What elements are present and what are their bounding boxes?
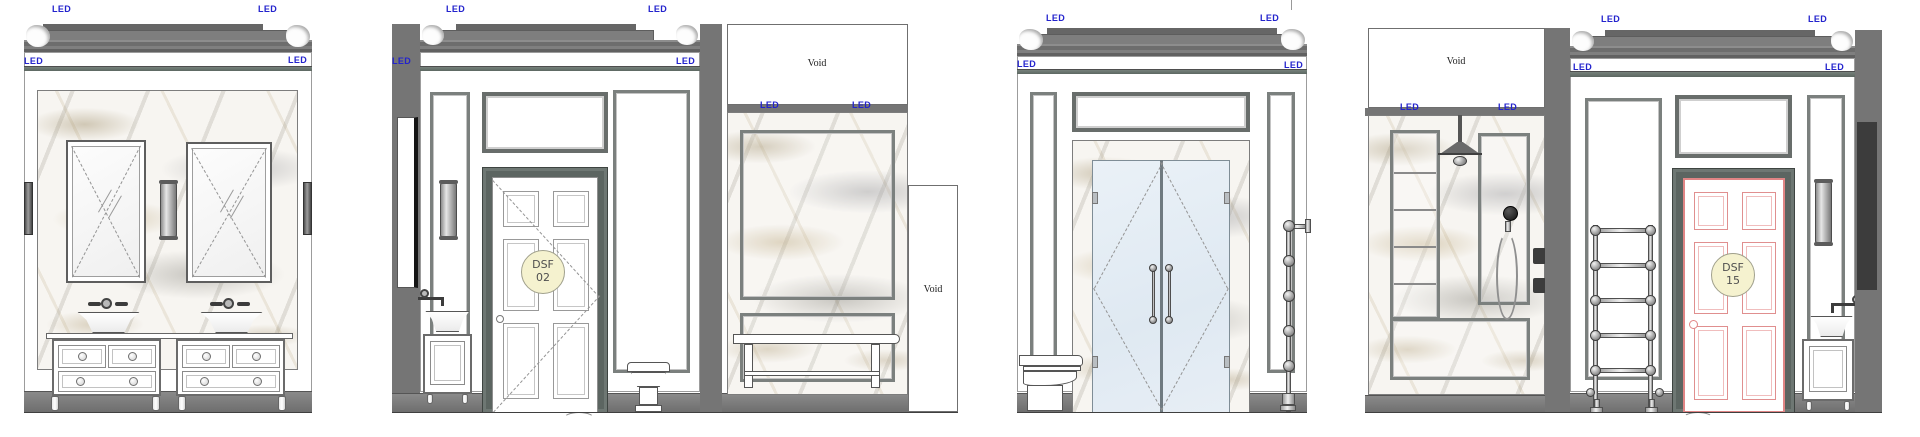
floor-line — [1365, 412, 1882, 413]
door-hinge — [1092, 192, 1098, 204]
drawer-knob — [129, 377, 138, 386]
door-center-stile — [1160, 160, 1163, 413]
shower-niche-shelving — [1390, 130, 1440, 320]
pipe-union — [1590, 260, 1601, 271]
cabinet-foot — [1844, 401, 1850, 411]
vanity-cabinet-right — [176, 339, 285, 396]
cornice-corner-scroll — [286, 25, 310, 47]
led-label: LED — [392, 56, 411, 66]
door-swing-arc — [563, 412, 595, 426]
drawer — [182, 371, 280, 392]
toilet-base — [635, 405, 662, 412]
towel-ladder-upright — [1648, 225, 1653, 411]
wall-spout-tip — [1831, 303, 1834, 313]
door-panel — [1742, 326, 1776, 400]
cabinet-door-panel — [430, 341, 465, 385]
door-pull-handle — [1168, 270, 1171, 318]
transom-panel — [1072, 92, 1250, 132]
handle-rosette — [1149, 264, 1157, 272]
transom-panel — [1675, 95, 1792, 158]
cornice-step — [24, 40, 312, 52]
elevation-panel-shower-door: Void LED LED LED LED LED — [1365, 0, 1882, 437]
marble-panel-mould — [1390, 318, 1530, 380]
toilet-pedestal — [1027, 385, 1063, 411]
transom-panel — [482, 92, 608, 153]
door-dsf02 — [492, 177, 598, 413]
elevation-panel-door-shower: LED LED LED LED DSF — [392, 0, 958, 437]
drawer-knob — [202, 352, 211, 361]
cabinet-foot — [1806, 401, 1812, 411]
towel-ladder-rung — [1596, 263, 1651, 268]
cornice-step — [420, 40, 700, 52]
door-pull-handle — [1152, 270, 1155, 318]
basin-cabinet — [423, 334, 472, 394]
vanity-leg — [278, 396, 286, 411]
vanity-leg — [51, 396, 59, 411]
cornice-step — [1017, 44, 1307, 56]
wall-panel-mould — [613, 90, 690, 373]
towel-ladder-upright — [1593, 225, 1598, 411]
shower-bench-seat — [733, 334, 900, 344]
wall-return-mirror-edge — [1857, 122, 1877, 290]
door-hinge — [1224, 192, 1230, 204]
cornice-step — [1570, 46, 1855, 58]
led-cove-strip — [420, 66, 700, 71]
towel-rail-flange — [1305, 219, 1311, 233]
vanity-leg — [178, 396, 186, 411]
floor-line — [392, 412, 958, 413]
void-label: Void — [767, 58, 867, 69]
door-hinge — [1224, 356, 1230, 368]
led-label: LED — [648, 4, 667, 14]
pilaster — [700, 24, 722, 413]
void-label: Void — [1423, 56, 1489, 67]
niche-shelf — [1394, 246, 1436, 248]
bench-stretcher — [744, 371, 880, 376]
drawer-knob — [78, 352, 87, 361]
handle-rosette — [1165, 316, 1173, 324]
hand-shower-head — [1503, 206, 1518, 221]
led-label: LED — [1400, 102, 1419, 112]
pilaster — [1545, 28, 1570, 413]
shower-ceiling-band — [727, 105, 908, 112]
drawer-knob — [200, 377, 209, 386]
pipe-floor-flange — [1280, 405, 1296, 411]
wall-spout — [1831, 303, 1855, 306]
pipe-union — [1645, 295, 1656, 306]
toilet-cistern-shelf — [1019, 355, 1083, 366]
wall-sconce — [1815, 182, 1832, 243]
drawer — [232, 345, 280, 368]
void-area — [1368, 28, 1545, 108]
hand-shower-holder — [1505, 221, 1511, 232]
led-label: LED — [1825, 62, 1844, 72]
led-label: LED — [1573, 62, 1592, 72]
led-label: LED — [258, 4, 277, 14]
door-hinge — [1092, 356, 1098, 368]
pipe-union — [1590, 225, 1601, 236]
drawer-knob — [253, 377, 262, 386]
door-tag-dsf02: DSF 02 — [521, 250, 565, 294]
tap-handle — [237, 302, 250, 306]
handle-rosette — [1165, 264, 1173, 272]
towel-ladder-rung — [1596, 368, 1651, 373]
pipe-union — [1283, 220, 1295, 232]
wall-panel-mould — [1030, 92, 1057, 370]
towel-rail-riser — [1286, 226, 1291, 412]
shower-hose — [1496, 232, 1518, 320]
elevation-sheet: LED LED LED LED — [0, 0, 1920, 437]
led-label: LED — [676, 56, 695, 66]
door-tag-dsf15: DSF 15 — [1711, 253, 1755, 297]
door-tag-number: 15 — [1726, 275, 1740, 288]
void-label: Void — [910, 284, 956, 295]
vanity-cabinet-left — [52, 339, 161, 396]
niche-shelf — [1394, 283, 1436, 285]
valve-handle — [1586, 388, 1595, 397]
vanity-leg — [152, 396, 160, 411]
led-label: LED — [1498, 102, 1517, 112]
drawer — [58, 345, 106, 368]
tap-spout — [223, 298, 234, 309]
door-swing-arc — [1683, 412, 1713, 424]
led-cove-strip — [1570, 71, 1855, 77]
led-label: LED — [852, 100, 871, 110]
led-label: LED — [52, 4, 71, 14]
pipe-union — [1645, 330, 1656, 341]
tap-handle — [115, 302, 128, 306]
pipe-union — [1590, 365, 1601, 376]
basin-cabinet — [1802, 339, 1854, 401]
cornice-corner-scroll — [1572, 31, 1594, 51]
led-cove-strip — [24, 66, 312, 71]
led-label: LED — [1260, 13, 1279, 23]
door-knob — [496, 315, 504, 323]
marble-panel-mould — [740, 130, 895, 300]
door-panel — [1694, 326, 1728, 400]
wall-sconce — [440, 183, 457, 237]
elevation-panel-glass-doors: LED LED LED LED — [1017, 0, 1307, 437]
pipe-foot-valve — [1282, 393, 1295, 405]
door-panel — [553, 323, 589, 399]
pipe-union — [1645, 260, 1656, 271]
door-panel — [1742, 192, 1776, 230]
door-panel — [1694, 192, 1728, 230]
wall-return-niche — [397, 117, 418, 288]
toilet-pedestal — [639, 387, 658, 405]
floor-line — [24, 412, 312, 413]
cornice-corner-scroll — [1281, 29, 1305, 50]
led-label: LED — [1017, 59, 1036, 69]
towel-ladder-rung — [1596, 333, 1651, 338]
cabinet-door-panel — [1809, 346, 1847, 392]
door-tag-number: 02 — [536, 272, 550, 285]
led-label: LED — [1046, 13, 1065, 23]
cornice-corner-scroll — [676, 25, 698, 45]
pipe-union — [1645, 225, 1656, 236]
pipe-union — [1590, 295, 1601, 306]
towel-ladder-rung — [1596, 228, 1651, 233]
reference-tick — [1291, 0, 1292, 10]
secondary-shower-head — [1453, 156, 1467, 166]
wall-spout-tip — [441, 297, 444, 306]
void-area — [908, 185, 958, 412]
rain-shower-stem — [1458, 115, 1462, 143]
drawer — [108, 345, 156, 368]
handle-rosette — [1149, 316, 1157, 324]
rain-shower-rim — [1438, 153, 1482, 155]
bench-leg — [871, 344, 880, 388]
tap-spout — [101, 298, 112, 309]
floor-line — [1017, 412, 1307, 413]
led-cove-strip — [1017, 69, 1307, 74]
pipe-union — [1590, 330, 1601, 341]
drawer-knob — [76, 377, 85, 386]
pipe-union — [1283, 290, 1295, 302]
towel-ladder-rung — [1596, 298, 1651, 303]
led-label: LED — [288, 55, 307, 65]
door-knob — [1689, 320, 1698, 329]
led-label: LED — [24, 56, 43, 66]
cabinet-foot — [427, 394, 433, 404]
cornice-corner-scroll — [422, 25, 444, 45]
tap-handle — [210, 302, 223, 306]
led-label: LED — [760, 100, 779, 110]
niche-shelf — [1394, 172, 1436, 174]
cornice-corner-scroll — [26, 25, 50, 47]
wall-sconce — [160, 183, 177, 237]
bench-leg — [744, 344, 753, 388]
niche-shelf — [1394, 209, 1436, 211]
drawer — [182, 345, 230, 368]
pipe-union — [1283, 325, 1295, 337]
pipe-union — [1645, 365, 1656, 376]
door-panel — [553, 191, 589, 227]
tap-handle — [88, 302, 101, 306]
cabinet-foot — [462, 394, 468, 404]
wall-sconce — [303, 182, 312, 235]
drawer-knob — [252, 352, 261, 361]
led-label: LED — [446, 4, 465, 14]
skirting — [1365, 395, 1545, 413]
elevation-panel-vanity: LED LED LED LED — [24, 0, 312, 437]
toilet-tank-top — [627, 362, 670, 372]
led-label: LED — [1808, 14, 1827, 24]
cornice-corner-scroll — [1831, 31, 1853, 51]
door-panel — [503, 323, 539, 399]
wall-sconce — [24, 182, 33, 235]
tap-handle — [420, 289, 429, 298]
drawer-knob — [128, 352, 137, 361]
cornice-corner-scroll — [1019, 29, 1043, 50]
drawer — [58, 371, 156, 392]
valve-handle — [1655, 388, 1664, 397]
led-label: LED — [1284, 60, 1303, 70]
pipe-union — [1283, 360, 1295, 372]
pipe-union — [1283, 255, 1295, 267]
led-label: LED — [1601, 14, 1620, 24]
